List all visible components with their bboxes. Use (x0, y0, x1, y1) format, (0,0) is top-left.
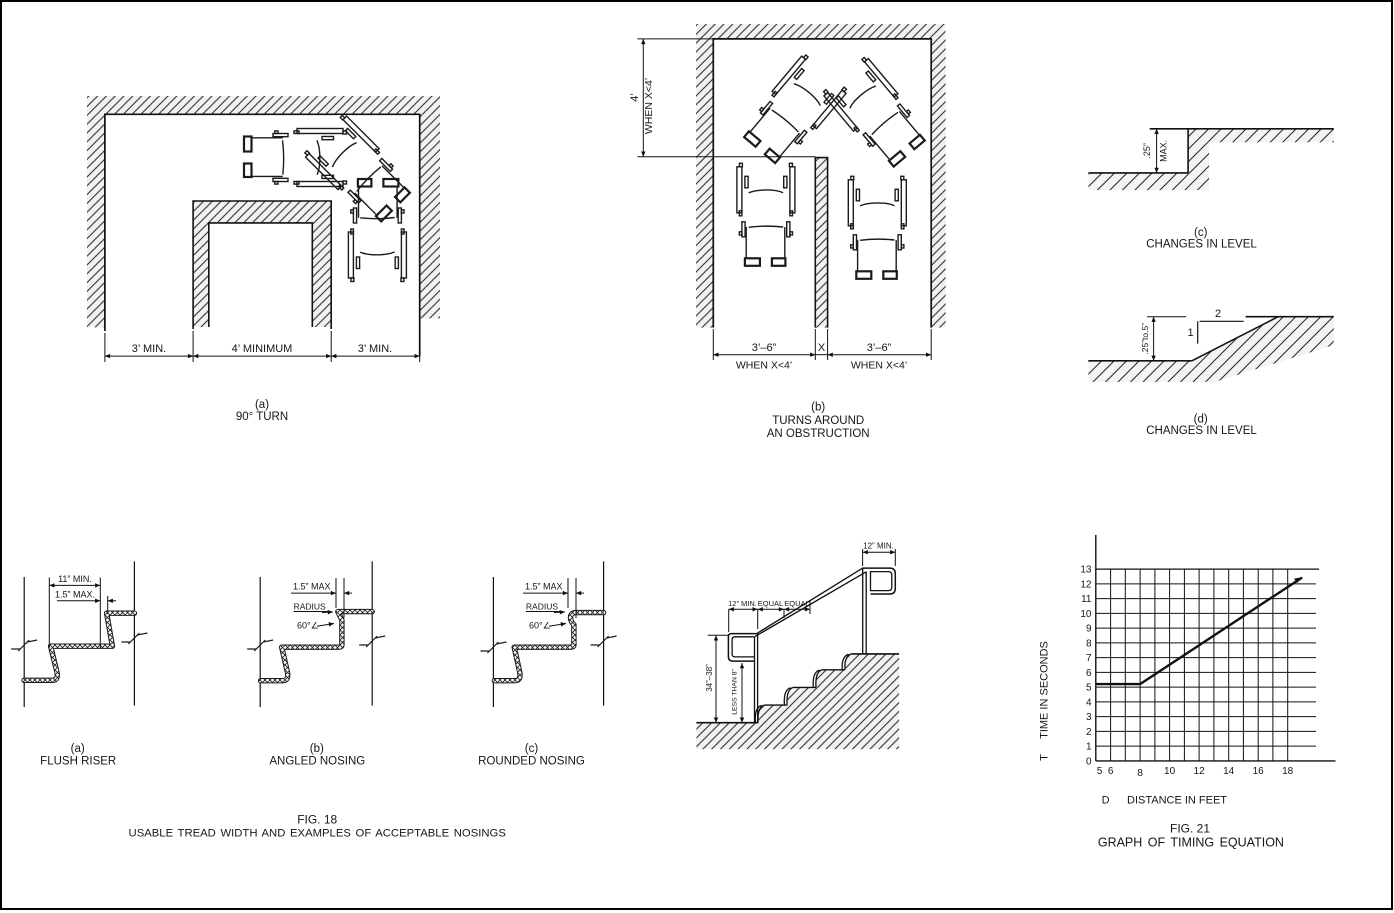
svg-text:3’ MIN.: 3’ MIN. (358, 343, 392, 355)
svg-text:CHANGES IN LEVEL: CHANGES IN LEVEL (1146, 239, 1257, 251)
svg-text:AN OBSTRUCTION: AN OBSTRUCTION (767, 428, 870, 440)
svg-text:(c): (c) (1194, 227, 1208, 239)
svg-text:1.5” MAX: 1.5” MAX (293, 582, 331, 592)
svg-text:USABLE TREAD WIDTH AND EXA: USABLE TREAD WIDTH AND EXAMPLES OF ACCEP… (129, 827, 507, 839)
svg-text:FIG. 18: FIG. 18 (297, 812, 337, 826)
svg-text:34”–38”: 34”–38” (705, 664, 714, 692)
svg-text:(a): (a) (71, 743, 85, 755)
svg-text:ANGLED NOSING: ANGLED NOSING (269, 756, 365, 768)
svg-text:14: 14 (1223, 766, 1235, 777)
svg-text:4’ MINIMUM: 4’ MINIMUM (232, 343, 293, 355)
svg-text:4: 4 (1086, 697, 1092, 708)
svg-text:60°∠: 60°∠ (529, 621, 551, 631)
svg-text:.25”to.5”: .25”to.5” (1140, 323, 1150, 355)
svg-text:12: 12 (1080, 579, 1092, 590)
svg-text:4’: 4’ (629, 93, 641, 102)
svg-text:T TIME IN SECONDS: T TIME IN SECONDS (1039, 641, 1051, 761)
svg-text:(b): (b) (811, 402, 825, 414)
svg-text:9: 9 (1086, 624, 1092, 635)
svg-text:60°∠: 60°∠ (297, 621, 319, 631)
svg-text:X: X (818, 342, 826, 354)
svg-text:6: 6 (1108, 766, 1114, 777)
svg-text:FIG. 21: FIG. 21 (1170, 822, 1210, 836)
svg-text:.25”: .25” (1142, 143, 1152, 159)
svg-text:16: 16 (1253, 766, 1265, 777)
svg-text:8: 8 (1137, 768, 1143, 779)
svg-text:EQUAL: EQUAL (784, 599, 809, 608)
svg-text:8: 8 (1086, 638, 1092, 649)
svg-text:13: 13 (1080, 565, 1092, 576)
svg-text:(c): (c) (525, 743, 539, 755)
svg-text:D: D (1102, 795, 1110, 807)
svg-text:12” MIN.: 12” MIN. (728, 599, 757, 608)
svg-text:7: 7 (1086, 653, 1092, 664)
svg-text:DISTANCE IN FEET: DISTANCE IN FEET (1127, 795, 1227, 807)
svg-text:LESS THAN 8”: LESS THAN 8” (732, 668, 739, 714)
svg-text:1: 1 (1187, 327, 1193, 339)
svg-text:TURNS AROUND: TURNS AROUND (772, 415, 864, 427)
svg-text:ROUNDED NOSING: ROUNDED NOSING (478, 756, 585, 768)
svg-text:90° TURN: 90° TURN (236, 411, 288, 423)
svg-text:11: 11 (1081, 594, 1092, 605)
svg-text:GRAPH OF TIMING EQUATION: GRAPH OF TIMING EQUATION (1098, 836, 1284, 850)
svg-text:3: 3 (1086, 712, 1092, 723)
svg-text:WHEN X<4’: WHEN X<4’ (851, 360, 907, 372)
svg-text:10: 10 (1080, 609, 1092, 620)
svg-text:RADIUS: RADIUS (294, 602, 326, 612)
svg-text:12” MIN.: 12” MIN. (863, 542, 894, 551)
svg-text:5: 5 (1086, 683, 1092, 694)
svg-text:(a): (a) (255, 399, 269, 411)
svg-text:1: 1 (1086, 742, 1092, 753)
svg-text:WHEN X<4’: WHEN X<4’ (736, 360, 792, 372)
svg-text:MAX.: MAX. (1159, 140, 1169, 162)
svg-text:RADIUS: RADIUS (526, 602, 558, 612)
svg-text:6: 6 (1086, 668, 1092, 679)
svg-text:(b): (b) (310, 743, 324, 755)
svg-text:1.5” MAX: 1.5” MAX (525, 582, 563, 592)
svg-text:5: 5 (1097, 766, 1103, 777)
svg-text:CHANGES IN LEVEL: CHANGES IN LEVEL (1146, 425, 1257, 437)
svg-text:FLUSH RISER: FLUSH RISER (40, 756, 116, 768)
svg-text:3’ MIN.: 3’ MIN. (132, 343, 166, 355)
svg-text:0: 0 (1086, 756, 1092, 767)
svg-text:3’–6”: 3’–6” (867, 342, 892, 354)
svg-text:11” MIN.: 11” MIN. (58, 574, 92, 584)
svg-text:3’–6”: 3’–6” (752, 342, 777, 354)
svg-text:12: 12 (1194, 766, 1206, 777)
svg-text:18: 18 (1282, 766, 1294, 777)
svg-text:2: 2 (1215, 308, 1221, 320)
svg-text:10: 10 (1164, 766, 1176, 777)
svg-text:1.5” MAX.: 1.5” MAX. (55, 590, 95, 600)
svg-text:2: 2 (1086, 727, 1092, 738)
svg-text:EQUAL: EQUAL (758, 599, 783, 608)
svg-text:WHEN X<4’: WHEN X<4’ (643, 78, 655, 134)
svg-text:(d): (d) (1194, 413, 1208, 425)
